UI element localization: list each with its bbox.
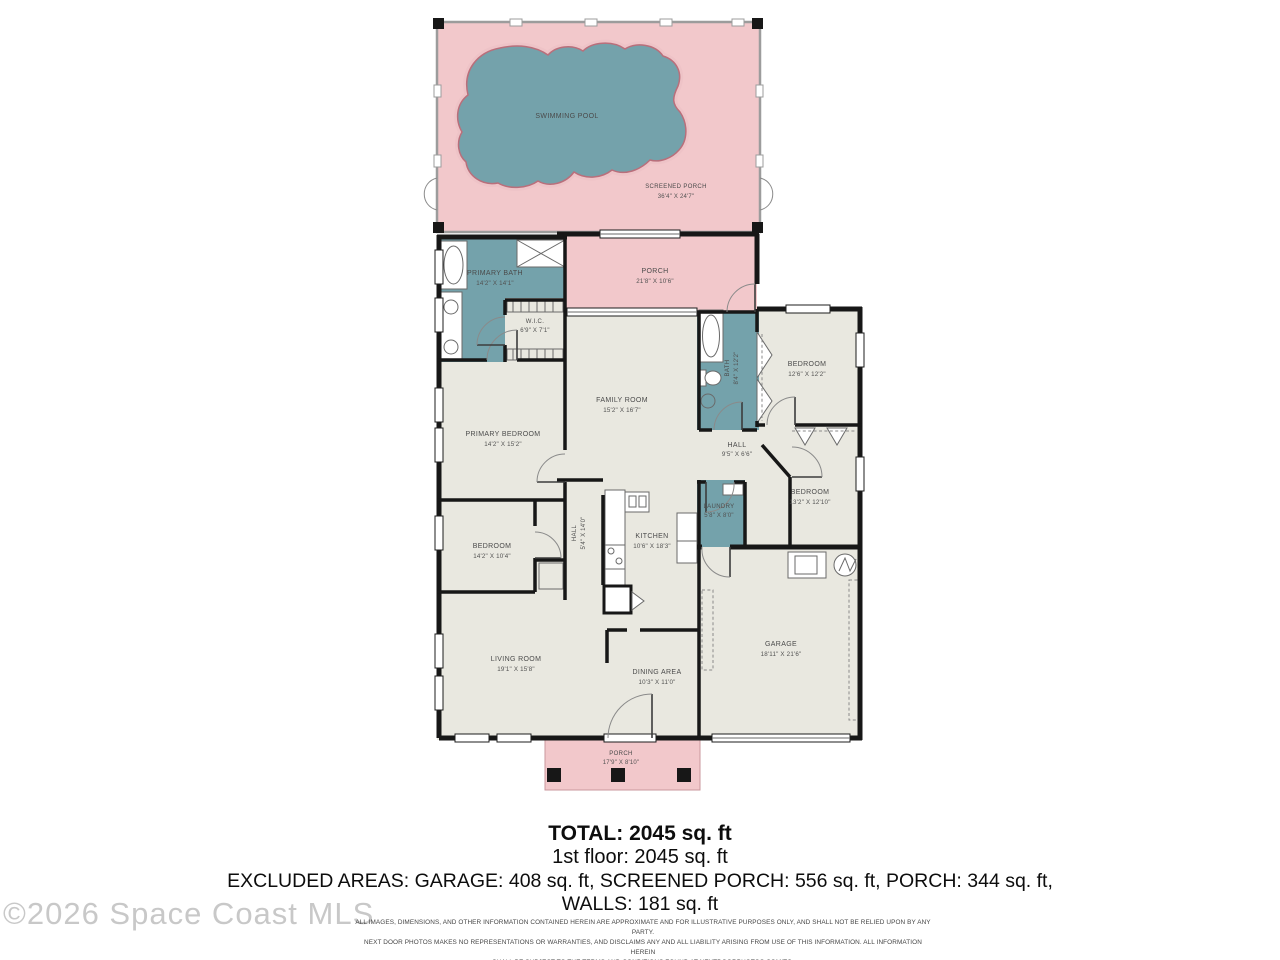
window	[435, 250, 443, 284]
porch-column	[611, 768, 625, 782]
label-dining-area: DINING AREA	[633, 669, 682, 676]
dims-kitchen: 10'6" X 18'3"	[633, 543, 671, 550]
label-bedroom-se: BEDROOM	[791, 489, 830, 496]
window	[455, 734, 489, 742]
window	[435, 634, 443, 668]
label-garage: GARAGE	[765, 641, 797, 648]
disclaimer-line-1: ALL IMAGES, DIMENSIONS, AND OTHER INFORM…	[353, 918, 933, 938]
refrigerator-icon	[677, 513, 697, 541]
disclaimer-line-2: NEXT DOOR PHOTOS MAKES NO REPRESENTATION…	[353, 938, 933, 958]
dims-bedroom-w: 14'2" X 10'4"	[473, 553, 511, 560]
dims-wic: 6'9" X 7'1"	[520, 328, 549, 334]
dims-hall-center: 5'4" X 14'0"	[581, 517, 587, 550]
window	[435, 676, 443, 710]
label-screened-porch: SCREENED PORCH	[645, 184, 707, 190]
screen-post	[434, 155, 441, 167]
corner-block	[752, 222, 763, 233]
water-heater-icon	[834, 554, 856, 576]
dims-laundry: 5'8" X 8'0"	[704, 513, 733, 519]
kitchen-counter	[605, 490, 625, 585]
kitchen-counter	[677, 541, 697, 563]
label-living-room: LIVING ROOM	[491, 656, 542, 663]
screen-post	[732, 19, 744, 26]
screen-post	[756, 85, 763, 97]
sliding-door	[567, 308, 697, 316]
dims-screened-porch: 36'4" X 24'7"	[658, 194, 695, 200]
label-swimming-pool: SWIMMING POOL	[535, 113, 598, 120]
porch-column	[677, 768, 691, 782]
screen-post	[510, 19, 522, 26]
screen-post	[756, 155, 763, 167]
first-floor-line: 1st floor: 2045 sq. ft	[0, 846, 1280, 869]
dims-bedroom-ne: 12'6" X 12'2"	[788, 371, 826, 378]
stove-icon	[605, 545, 625, 569]
screen-post	[434, 85, 441, 97]
window	[435, 516, 443, 550]
exterior-arc-left	[424, 178, 437, 210]
corner-block	[433, 18, 444, 29]
label-wic: W.I.C.	[526, 319, 544, 325]
corner-block	[433, 222, 444, 233]
garage-door	[712, 734, 850, 742]
ac-unit-icon	[788, 552, 826, 578]
kitchen-sink-icon	[625, 492, 649, 512]
toilet-icon	[699, 370, 721, 386]
dims-family-room: 15'2" X 16'7"	[603, 407, 641, 414]
shower-icon	[517, 240, 565, 267]
bathtub-icon	[699, 310, 723, 362]
label-porch-front: PORCH	[609, 751, 632, 757]
total-area-line: TOTAL: 2045 sq. ft	[0, 822, 1280, 846]
label-hall-center: HALL	[572, 524, 578, 541]
dims-primary-bath: 14'2" X 14'1"	[476, 280, 514, 287]
floor-plan-page: SWIMMING POOL SCREENED PORCH 36'4" X 24'…	[0, 0, 1280, 960]
exterior-arc-right	[760, 178, 773, 210]
window	[497, 734, 531, 742]
dims-living-room: 19'1" X 15'8"	[497, 666, 535, 673]
floor-plan-svg: SWIMMING POOL SCREENED PORCH 36'4" X 24'…	[0, 0, 1280, 960]
dims-garage: 18'11" X 21'6"	[761, 651, 802, 658]
window	[435, 428, 443, 462]
window	[856, 333, 864, 367]
label-kitchen: KITCHEN	[635, 533, 668, 540]
label-bedroom-ne: BEDROOM	[788, 361, 827, 368]
dims-hall-east: 9'5" X 6'6"	[722, 451, 752, 458]
screen-post	[585, 19, 597, 26]
dims-primary-bedroom: 14'2" X 15'2"	[484, 441, 522, 448]
front-door-opening	[604, 734, 656, 742]
window	[435, 298, 443, 332]
dims-porch-rear: 21'8" X 10'6"	[636, 278, 674, 285]
bathtub-icon	[440, 241, 467, 289]
dims-bath: 8'4" X 12'2"	[734, 352, 740, 385]
disclaimer-text: ALL IMAGES, DIMENSIONS, AND OTHER INFORM…	[353, 918, 933, 960]
label-porch-rear: PORCH	[641, 268, 668, 275]
window	[435, 388, 443, 422]
mls-watermark: ©2026 Space Coast MLS	[3, 896, 374, 932]
excluded-areas-line: EXCLUDED AREAS: GARAGE: 408 sq. ft, SCRE…	[0, 869, 1280, 893]
corner-block	[752, 18, 763, 29]
porch-column	[547, 768, 561, 782]
dims-bedroom-se: 13'2" X 12'10"	[789, 499, 830, 506]
label-primary-bedroom: PRIMARY BEDROOM	[465, 431, 540, 438]
window	[786, 305, 830, 313]
dims-dining-area: 10'3" X 11'0"	[638, 679, 675, 686]
label-bath: BATH	[725, 360, 731, 377]
dims-porch-front: 17'9" X 8'10"	[603, 760, 640, 766]
sliding-door	[600, 230, 680, 238]
label-bedroom-w: BEDROOM	[473, 543, 512, 550]
window	[856, 457, 864, 491]
screen-post	[660, 19, 672, 26]
label-laundry: LAUNDRY	[703, 504, 734, 510]
label-hall-east: HALL	[728, 442, 747, 449]
label-family-room: FAMILY ROOM	[596, 397, 648, 404]
label-primary-bath: PRIMARY BATH	[467, 270, 523, 277]
